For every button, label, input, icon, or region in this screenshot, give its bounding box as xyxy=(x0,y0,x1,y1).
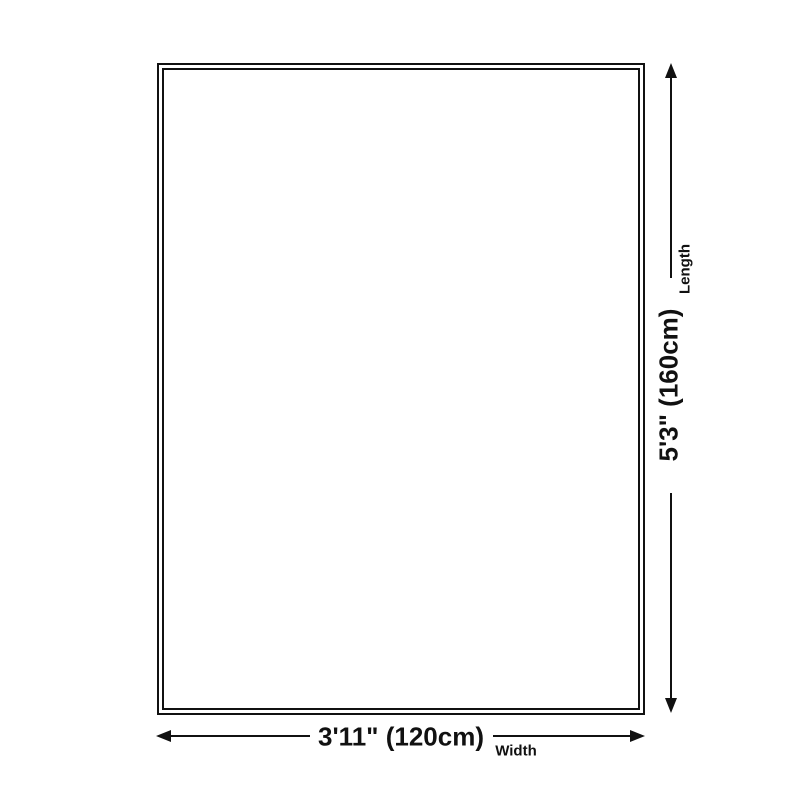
length-dimension-line-top xyxy=(670,76,672,278)
width-arrow-right-icon xyxy=(630,730,645,742)
size-diagram: Length 5'3" (160cm) 3'11" (120cm) Width xyxy=(0,0,800,800)
width-axis-label: Width xyxy=(495,743,537,760)
length-axis-label: Length xyxy=(677,244,694,294)
width-arrow-left-icon xyxy=(156,730,171,742)
width-value-label: 3'11" (120cm) xyxy=(318,722,484,753)
length-value-label: 5'3" (160cm) xyxy=(654,309,685,462)
rug-outline-inner xyxy=(162,68,640,710)
width-dimension-line-right xyxy=(493,735,633,737)
length-dimension-line-bottom xyxy=(670,493,672,699)
rug-outline xyxy=(157,63,645,715)
length-arrow-down-icon xyxy=(665,698,677,713)
width-dimension-line-left xyxy=(170,735,310,737)
